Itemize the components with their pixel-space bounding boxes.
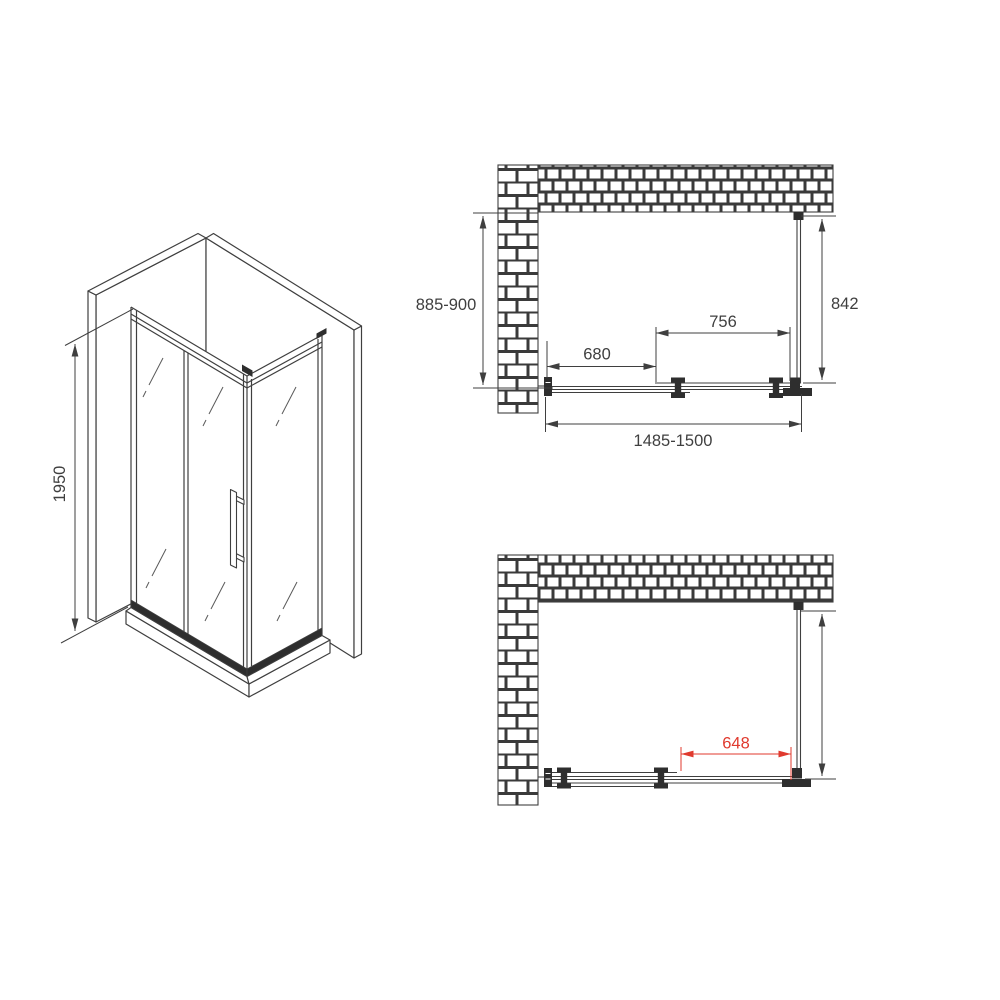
door-width-dimension: 680 [547, 341, 656, 378]
door-width-label: 680 [583, 346, 611, 364]
technical-drawing-sheet: 1950 [0, 0, 1000, 1000]
door-track-closed [538, 377, 812, 398]
fixed-panel-label: 756 [709, 313, 737, 331]
opening-dimension: 648 [681, 735, 791, 781]
masonry-walls-closed [498, 165, 833, 413]
extension-lines [801, 611, 836, 779]
roller-left [671, 378, 685, 399]
top-brick-wall [538, 165, 833, 212]
side-panel-label: 842 [831, 295, 859, 313]
side-glass-face [247, 335, 322, 676]
left-wall-edge [88, 291, 96, 622]
side-panel-plan [794, 212, 804, 384]
opening-width-label: 648 [722, 735, 750, 753]
shower-enclosure-drawing: 1950 [0, 0, 1000, 1000]
right-wall-edge [354, 326, 362, 658]
side-dimension-unlabeled [801, 611, 836, 779]
roller-right [654, 768, 668, 789]
depth-label: 885-900 [416, 296, 477, 314]
plan-view-door-closed: 885-900 842 756 680 1485-1500 [416, 165, 859, 450]
left-brick-wall [498, 165, 538, 413]
corner-bracket [782, 768, 811, 787]
isometric-view: 1950 [51, 234, 362, 698]
roller-right [769, 378, 783, 399]
roller-left [557, 768, 571, 789]
plan-view-door-open: 648 [498, 555, 836, 805]
fixed-panel-dimension: 756 [656, 313, 790, 384]
left-brick-wall [498, 555, 538, 805]
total-width-dimension: 1485-1500 [546, 394, 802, 450]
extension-lines [656, 327, 790, 384]
height-dimension-label: 1950 [51, 466, 69, 503]
wall-profile [544, 377, 552, 396]
extension-lines [546, 394, 802, 432]
total-width-label: 1485-1500 [634, 432, 713, 450]
side-panel-plan [794, 602, 804, 777]
track-rails [546, 387, 802, 390]
wall-bracket-top [794, 602, 804, 610]
wall-profile [544, 768, 552, 787]
top-brick-wall [538, 555, 833, 602]
side-panel-dimension: 842 [801, 216, 859, 383]
track-rails [546, 777, 802, 784]
door-track-open [538, 768, 811, 789]
handle-bar [231, 490, 237, 569]
